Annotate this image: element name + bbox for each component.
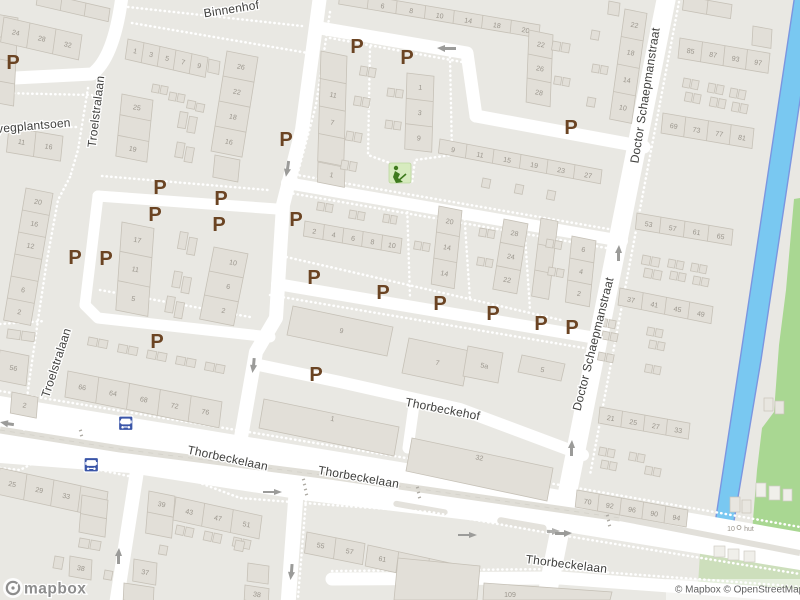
svg-text:28: 28 [510, 230, 519, 238]
svg-text:10: 10 [727, 526, 735, 533]
svg-text:38: 38 [252, 591, 261, 599]
svg-text:11: 11 [131, 266, 140, 274]
svg-text:85: 85 [686, 48, 695, 56]
svg-text:18: 18 [228, 113, 237, 121]
svg-text:69: 69 [669, 123, 678, 131]
svg-text:93: 93 [731, 55, 740, 63]
svg-text:P: P [6, 52, 19, 74]
svg-text:49: 49 [696, 311, 705, 319]
svg-text:55: 55 [316, 542, 325, 550]
svg-text:P: P [289, 209, 302, 231]
svg-text:68: 68 [139, 396, 148, 404]
svg-text:14: 14 [440, 270, 449, 278]
svg-text:26: 26 [236, 63, 245, 71]
svg-text:P: P [433, 293, 446, 315]
svg-text:P: P [486, 303, 499, 325]
svg-text:mapbox: mapbox [24, 581, 86, 598]
svg-text:P: P [279, 129, 292, 151]
svg-text:20: 20 [33, 199, 42, 207]
svg-text:77: 77 [715, 131, 724, 139]
svg-text:28: 28 [534, 89, 543, 97]
svg-text:25: 25 [629, 419, 638, 427]
svg-text:14: 14 [622, 77, 631, 85]
svg-text:66: 66 [78, 384, 87, 392]
svg-text:P: P [212, 214, 225, 236]
svg-text:11: 11 [476, 152, 485, 160]
svg-text:65: 65 [716, 233, 725, 241]
svg-text:45: 45 [673, 306, 682, 314]
svg-text:37: 37 [626, 297, 635, 305]
svg-text:73: 73 [692, 127, 701, 135]
svg-text:17: 17 [133, 237, 142, 245]
svg-text:19: 19 [529, 162, 538, 170]
svg-text:P: P [68, 247, 81, 269]
svg-text:23: 23 [556, 167, 565, 175]
svg-text:33: 33 [674, 427, 683, 435]
svg-text:27: 27 [651, 423, 660, 431]
svg-text:57: 57 [345, 548, 354, 556]
svg-text:37: 37 [141, 569, 150, 577]
svg-text:P: P [148, 204, 161, 226]
svg-text:39: 39 [157, 501, 166, 509]
svg-text:22: 22 [502, 277, 511, 285]
svg-text:109: 109 [504, 592, 516, 599]
svg-text:P: P [376, 282, 389, 304]
svg-text:22: 22 [536, 41, 545, 49]
svg-text:41: 41 [650, 301, 659, 309]
svg-text:P: P [565, 317, 578, 339]
svg-text:21: 21 [606, 415, 615, 423]
svg-text:90: 90 [650, 510, 659, 518]
svg-text:P: P [150, 331, 163, 353]
svg-text:18: 18 [492, 22, 501, 30]
svg-text:76: 76 [201, 409, 210, 417]
svg-text:61: 61 [692, 229, 701, 237]
svg-text:19: 19 [128, 146, 137, 154]
svg-text:hut: hut [744, 526, 754, 533]
svg-text:P: P [564, 117, 577, 139]
svg-text:16: 16 [224, 138, 233, 146]
svg-text:© Mapbox © OpenStreetMap: © Mapbox © OpenStreetMap [675, 585, 800, 596]
svg-text:11: 11 [17, 139, 25, 147]
svg-text:11: 11 [329, 92, 338, 100]
svg-text:P: P [99, 248, 112, 270]
svg-text:57: 57 [668, 225, 677, 233]
svg-text:14: 14 [464, 17, 473, 25]
svg-text:15: 15 [502, 157, 511, 165]
svg-text:P: P [214, 188, 227, 210]
svg-text:P: P [153, 177, 166, 199]
svg-text:94: 94 [672, 514, 681, 522]
svg-text:22: 22 [630, 22, 639, 30]
svg-text:10: 10 [387, 242, 396, 250]
svg-text:P: P [309, 364, 322, 386]
svg-text:24: 24 [506, 253, 515, 261]
svg-text:25: 25 [132, 104, 141, 112]
svg-text:20: 20 [445, 218, 454, 226]
svg-text:27: 27 [583, 172, 592, 180]
svg-text:10: 10 [435, 12, 444, 20]
svg-text:92: 92 [605, 502, 614, 510]
svg-text:38: 38 [76, 565, 85, 573]
svg-text:81: 81 [737, 134, 746, 142]
svg-text:70: 70 [583, 498, 592, 506]
svg-text:P: P [350, 36, 363, 58]
svg-text:14: 14 [442, 244, 451, 252]
svg-text:16: 16 [44, 143, 53, 151]
svg-text:26: 26 [535, 65, 544, 73]
svg-text:P: P [534, 313, 547, 335]
svg-text:97: 97 [754, 59, 763, 67]
svg-text:P: P [400, 47, 413, 69]
svg-text:18: 18 [626, 49, 635, 57]
svg-text:56: 56 [9, 365, 18, 373]
svg-text:72: 72 [170, 402, 179, 410]
svg-text:10: 10 [618, 104, 627, 112]
svg-text:22: 22 [232, 88, 241, 96]
svg-text:10: 10 [228, 259, 237, 267]
svg-text:64: 64 [108, 390, 117, 398]
svg-text:53: 53 [644, 221, 653, 229]
svg-text:16: 16 [30, 221, 39, 229]
svg-text:96: 96 [627, 506, 636, 514]
svg-text:12: 12 [26, 243, 35, 251]
svg-text:P: P [307, 267, 320, 289]
svg-text:87: 87 [709, 52, 718, 60]
